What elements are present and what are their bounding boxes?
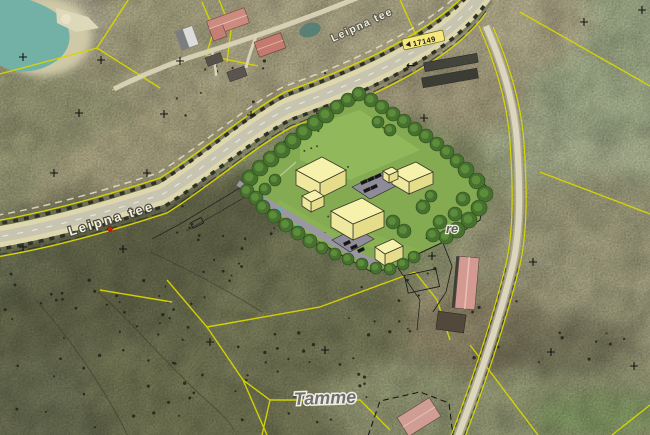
map-canvas: Leipna tee Leipna tee Tamme re 17149 ← (0, 0, 650, 435)
barn-red (452, 256, 479, 310)
direction-arrow-icon: ← (406, 59, 415, 72)
place-name-tamme: Tamme (293, 387, 356, 409)
shed-dark (436, 311, 466, 333)
place-name-partial: re (446, 221, 458, 236)
